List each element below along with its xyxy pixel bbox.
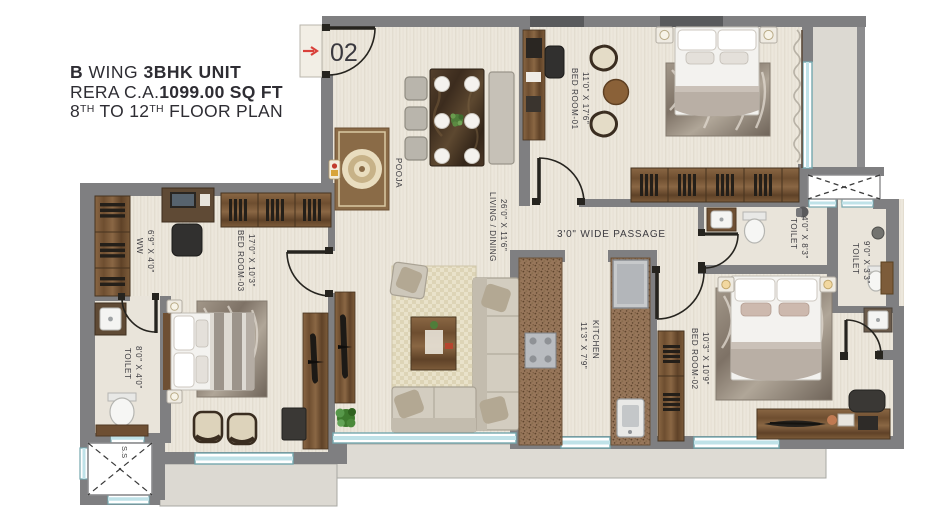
svg-text:TOILET: TOILET <box>851 243 860 274</box>
svg-text:4'0" X 8'3": 4'0" X 8'3" <box>800 216 809 259</box>
svg-text:17'0" X 10'3": 17'0" X 10'3" <box>247 234 256 287</box>
svg-text:26'0" X 11'6": 26'0" X 11'6" <box>499 199 508 251</box>
svg-text:BED ROOM-02: BED ROOM-02 <box>690 328 699 390</box>
svg-text:02: 02 <box>330 39 358 67</box>
svg-text:TOILET: TOILET <box>789 218 798 249</box>
svg-text:TOILET: TOILET <box>123 348 132 379</box>
svg-text:8'0" X 4'0": 8'0" X 4'0" <box>134 346 143 389</box>
svg-text:S.S: S.S <box>120 446 129 458</box>
svg-text:WW: WW <box>135 238 144 254</box>
svg-text:BED ROOM-01: BED ROOM-01 <box>570 68 579 130</box>
svg-text:RERA C.A.1099.00 SQ FT: RERA C.A.1099.00 SQ FT <box>70 82 283 102</box>
svg-text:8TH TO 12TH FLOOR PLAN: 8TH TO 12TH FLOOR PLAN <box>70 101 283 121</box>
svg-text:9'0" X 3'3": 9'0" X 3'3" <box>862 241 871 284</box>
svg-text:B WING 3BHK UNIT: B WING 3BHK UNIT <box>70 62 241 82</box>
svg-text:BED ROOM-03: BED ROOM-03 <box>236 230 245 292</box>
svg-text:3'0" WIDE PASSAGE: 3'0" WIDE PASSAGE <box>557 229 666 240</box>
svg-text:11'0" X 17'6": 11'0" X 17'6" <box>581 72 590 124</box>
svg-text:LIVING / DINING: LIVING / DINING <box>488 192 497 262</box>
svg-text:KITCHEN: KITCHEN <box>591 320 600 359</box>
svg-text:POOJA: POOJA <box>394 158 403 188</box>
svg-text:6'9" X 4'0": 6'9" X 4'0" <box>146 230 155 273</box>
svg-text:11'3" X 7'9": 11'3" X 7'9" <box>579 322 588 369</box>
svg-text:10'3" X 10'9": 10'3" X 10'9" <box>701 332 710 385</box>
